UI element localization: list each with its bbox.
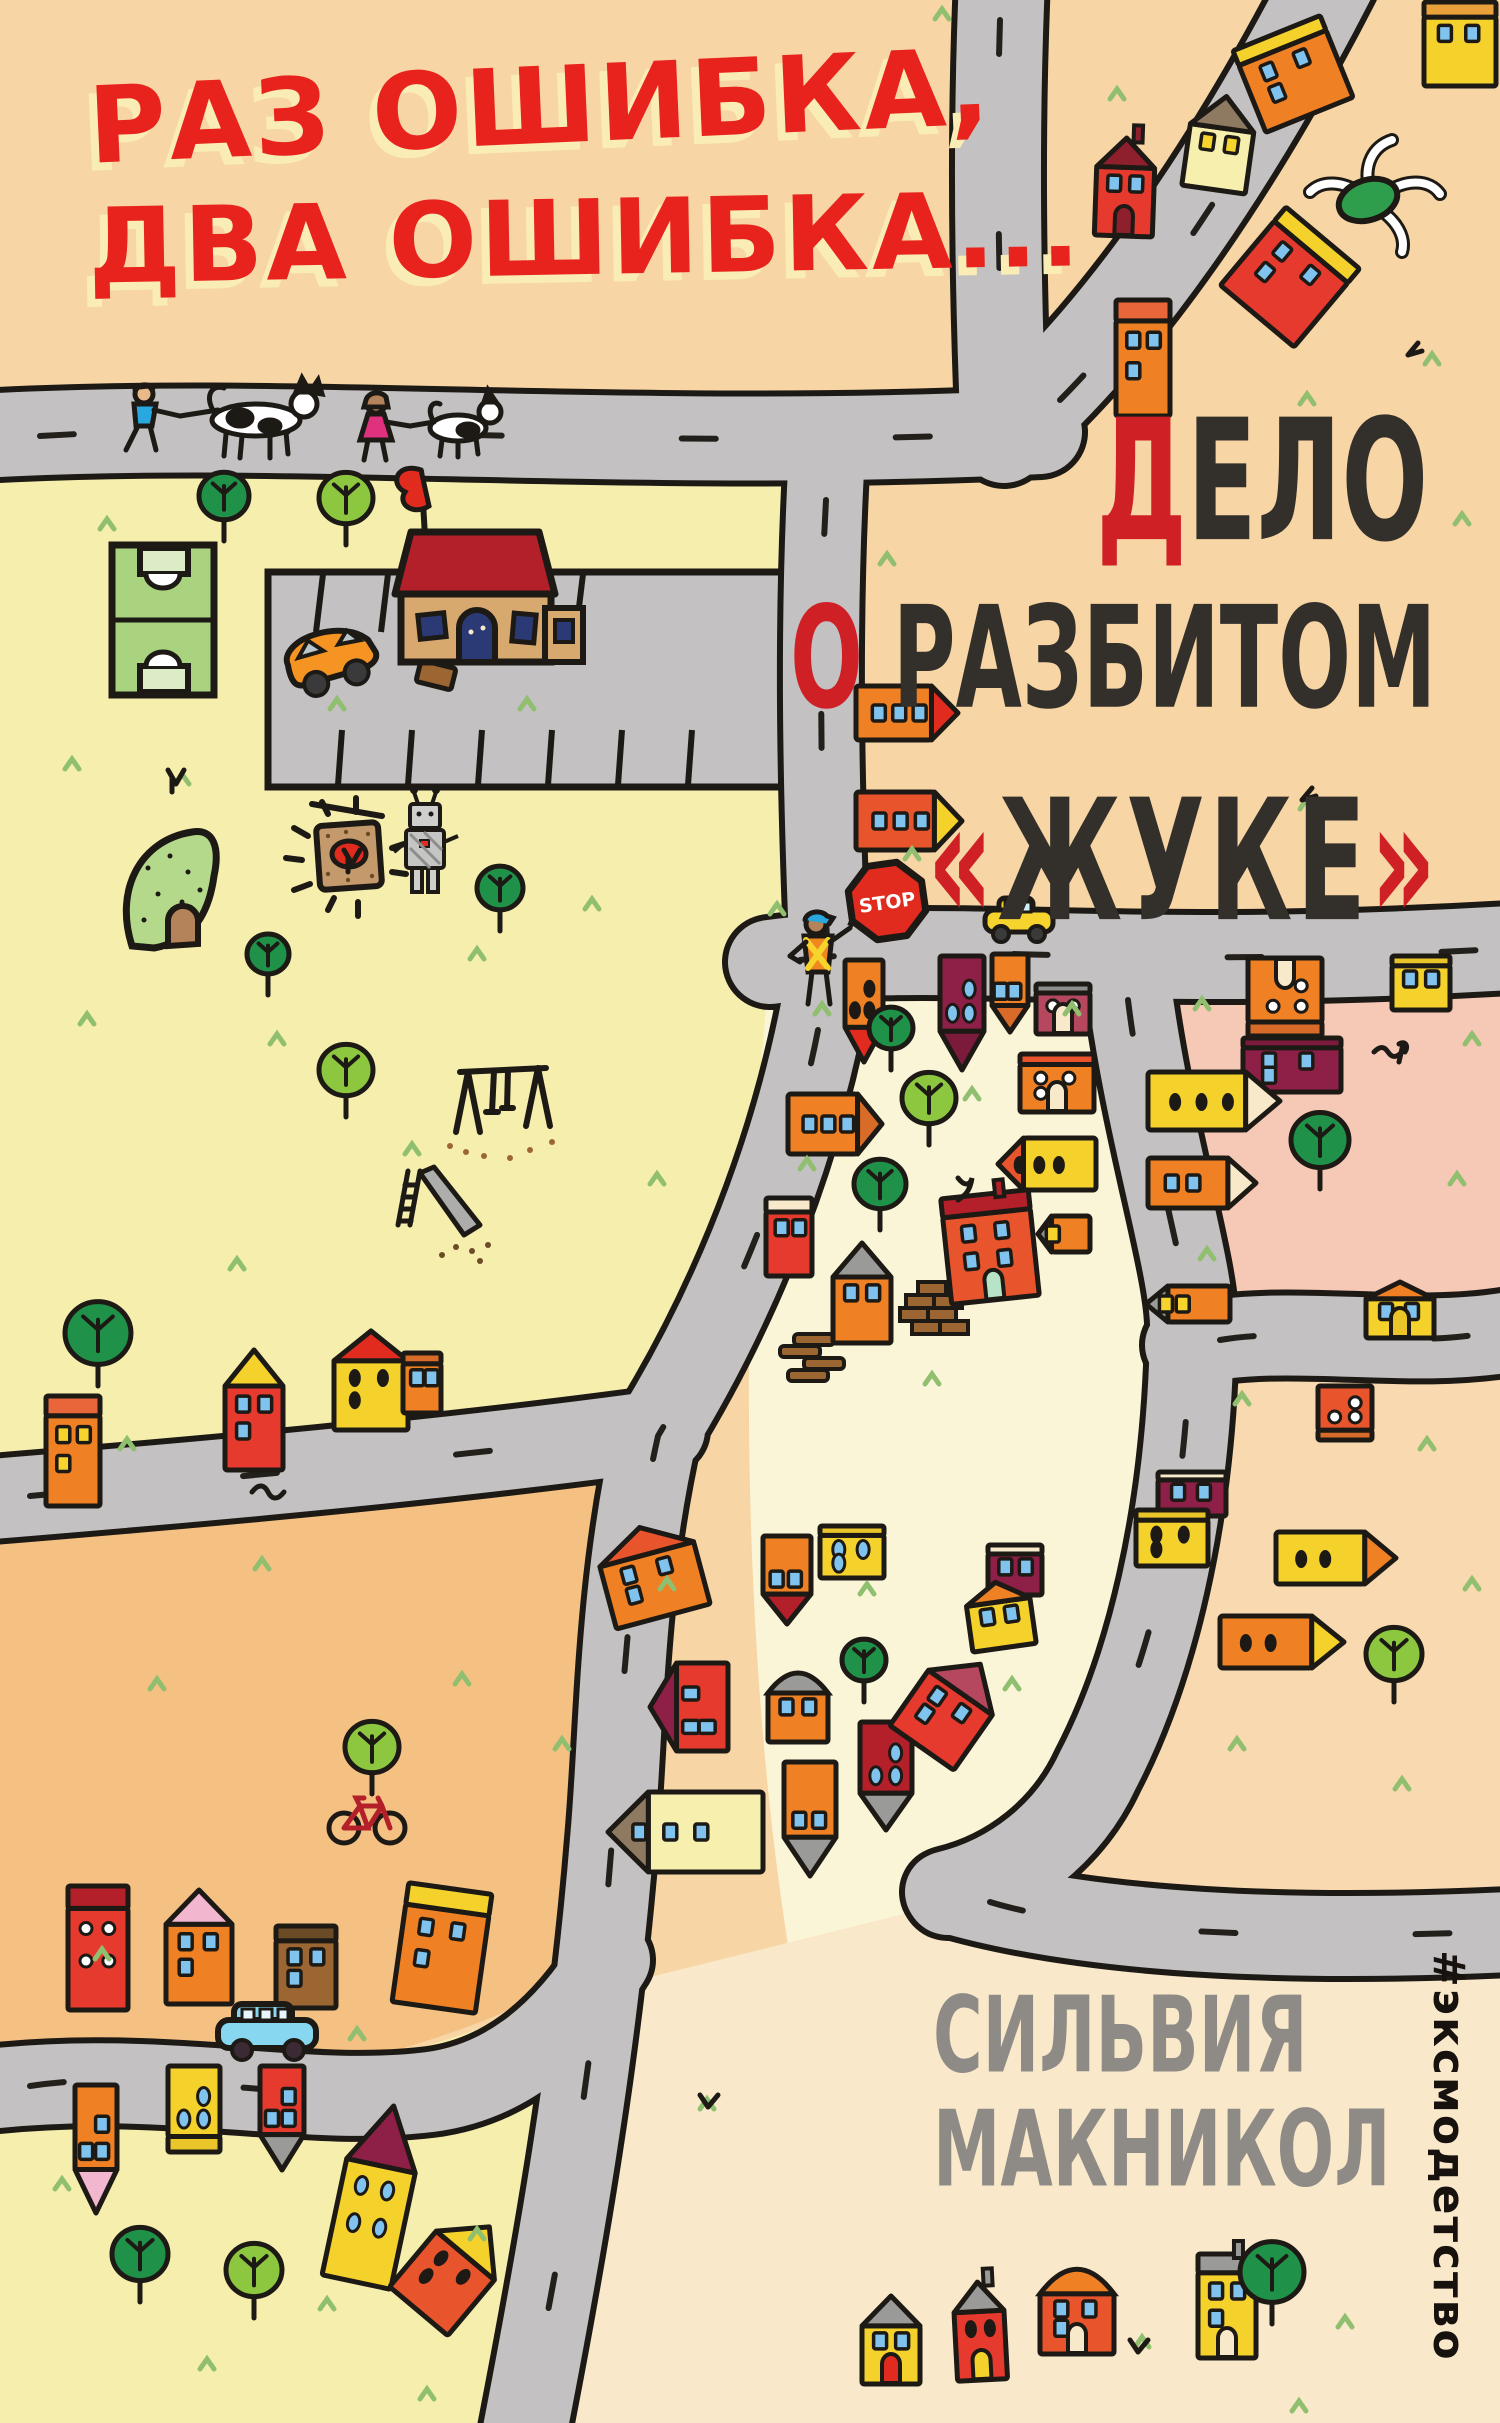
house bbox=[392, 1883, 492, 2014]
house bbox=[1038, 1216, 1090, 1252]
house bbox=[1424, 2, 1496, 86]
house bbox=[403, 1353, 441, 1413]
subtitle-close-quote: » bbox=[1370, 765, 1440, 960]
subtitle-accent-o: О bbox=[790, 576, 863, 741]
house bbox=[1040, 2269, 1114, 2354]
author-first-name: СИЛЬВИЯ bbox=[933, 1984, 1257, 2089]
red-flag bbox=[397, 468, 429, 509]
subtitle-accent-letter: Д bbox=[1096, 385, 1187, 580]
subtitle-word-1: ЕЛО bbox=[1187, 385, 1428, 580]
house bbox=[46, 1396, 100, 1506]
house bbox=[1020, 1054, 1094, 1112]
house bbox=[168, 2066, 220, 2152]
school-door bbox=[459, 610, 495, 662]
house bbox=[766, 1198, 812, 1276]
hedge-cave bbox=[168, 906, 198, 946]
house bbox=[939, 1177, 1039, 1305]
house bbox=[1148, 1158, 1256, 1208]
subtitle-line-3: «ЖУКЕ» bbox=[927, 778, 1440, 946]
house bbox=[1220, 1616, 1344, 1668]
title-line-2: ДВА ОШИБКА... bbox=[87, 177, 1083, 298]
subtitle-line-1: ДЕЛО bbox=[1096, 398, 1428, 566]
house bbox=[276, 1926, 336, 2008]
subtitle-word-3: ЖУКЕ bbox=[997, 765, 1370, 960]
subtitle-word-2: РАЗБИТОМ bbox=[863, 576, 1436, 741]
house bbox=[788, 1094, 882, 1154]
house bbox=[1392, 956, 1450, 1010]
house bbox=[1276, 1532, 1396, 1584]
book-cover: STOP bbox=[0, 0, 1500, 2423]
house bbox=[768, 1673, 828, 1742]
house bbox=[68, 1886, 128, 2010]
house bbox=[1036, 984, 1090, 1034]
subtitle-open-quote: « bbox=[927, 765, 997, 960]
subtitle-line-2: О РАЗБИТОМ bbox=[790, 588, 1436, 729]
house bbox=[1318, 1386, 1372, 1440]
author-last-name: МАКНИКОЛ bbox=[933, 2098, 1257, 2203]
house bbox=[1146, 1286, 1230, 1322]
soccer-field bbox=[112, 545, 214, 695]
house bbox=[1136, 1510, 1208, 1566]
house bbox=[1248, 958, 1322, 1036]
house bbox=[820, 1526, 884, 1578]
publisher-hashtag: #эксмодетство bbox=[1426, 1950, 1470, 2362]
house bbox=[998, 1138, 1096, 1190]
